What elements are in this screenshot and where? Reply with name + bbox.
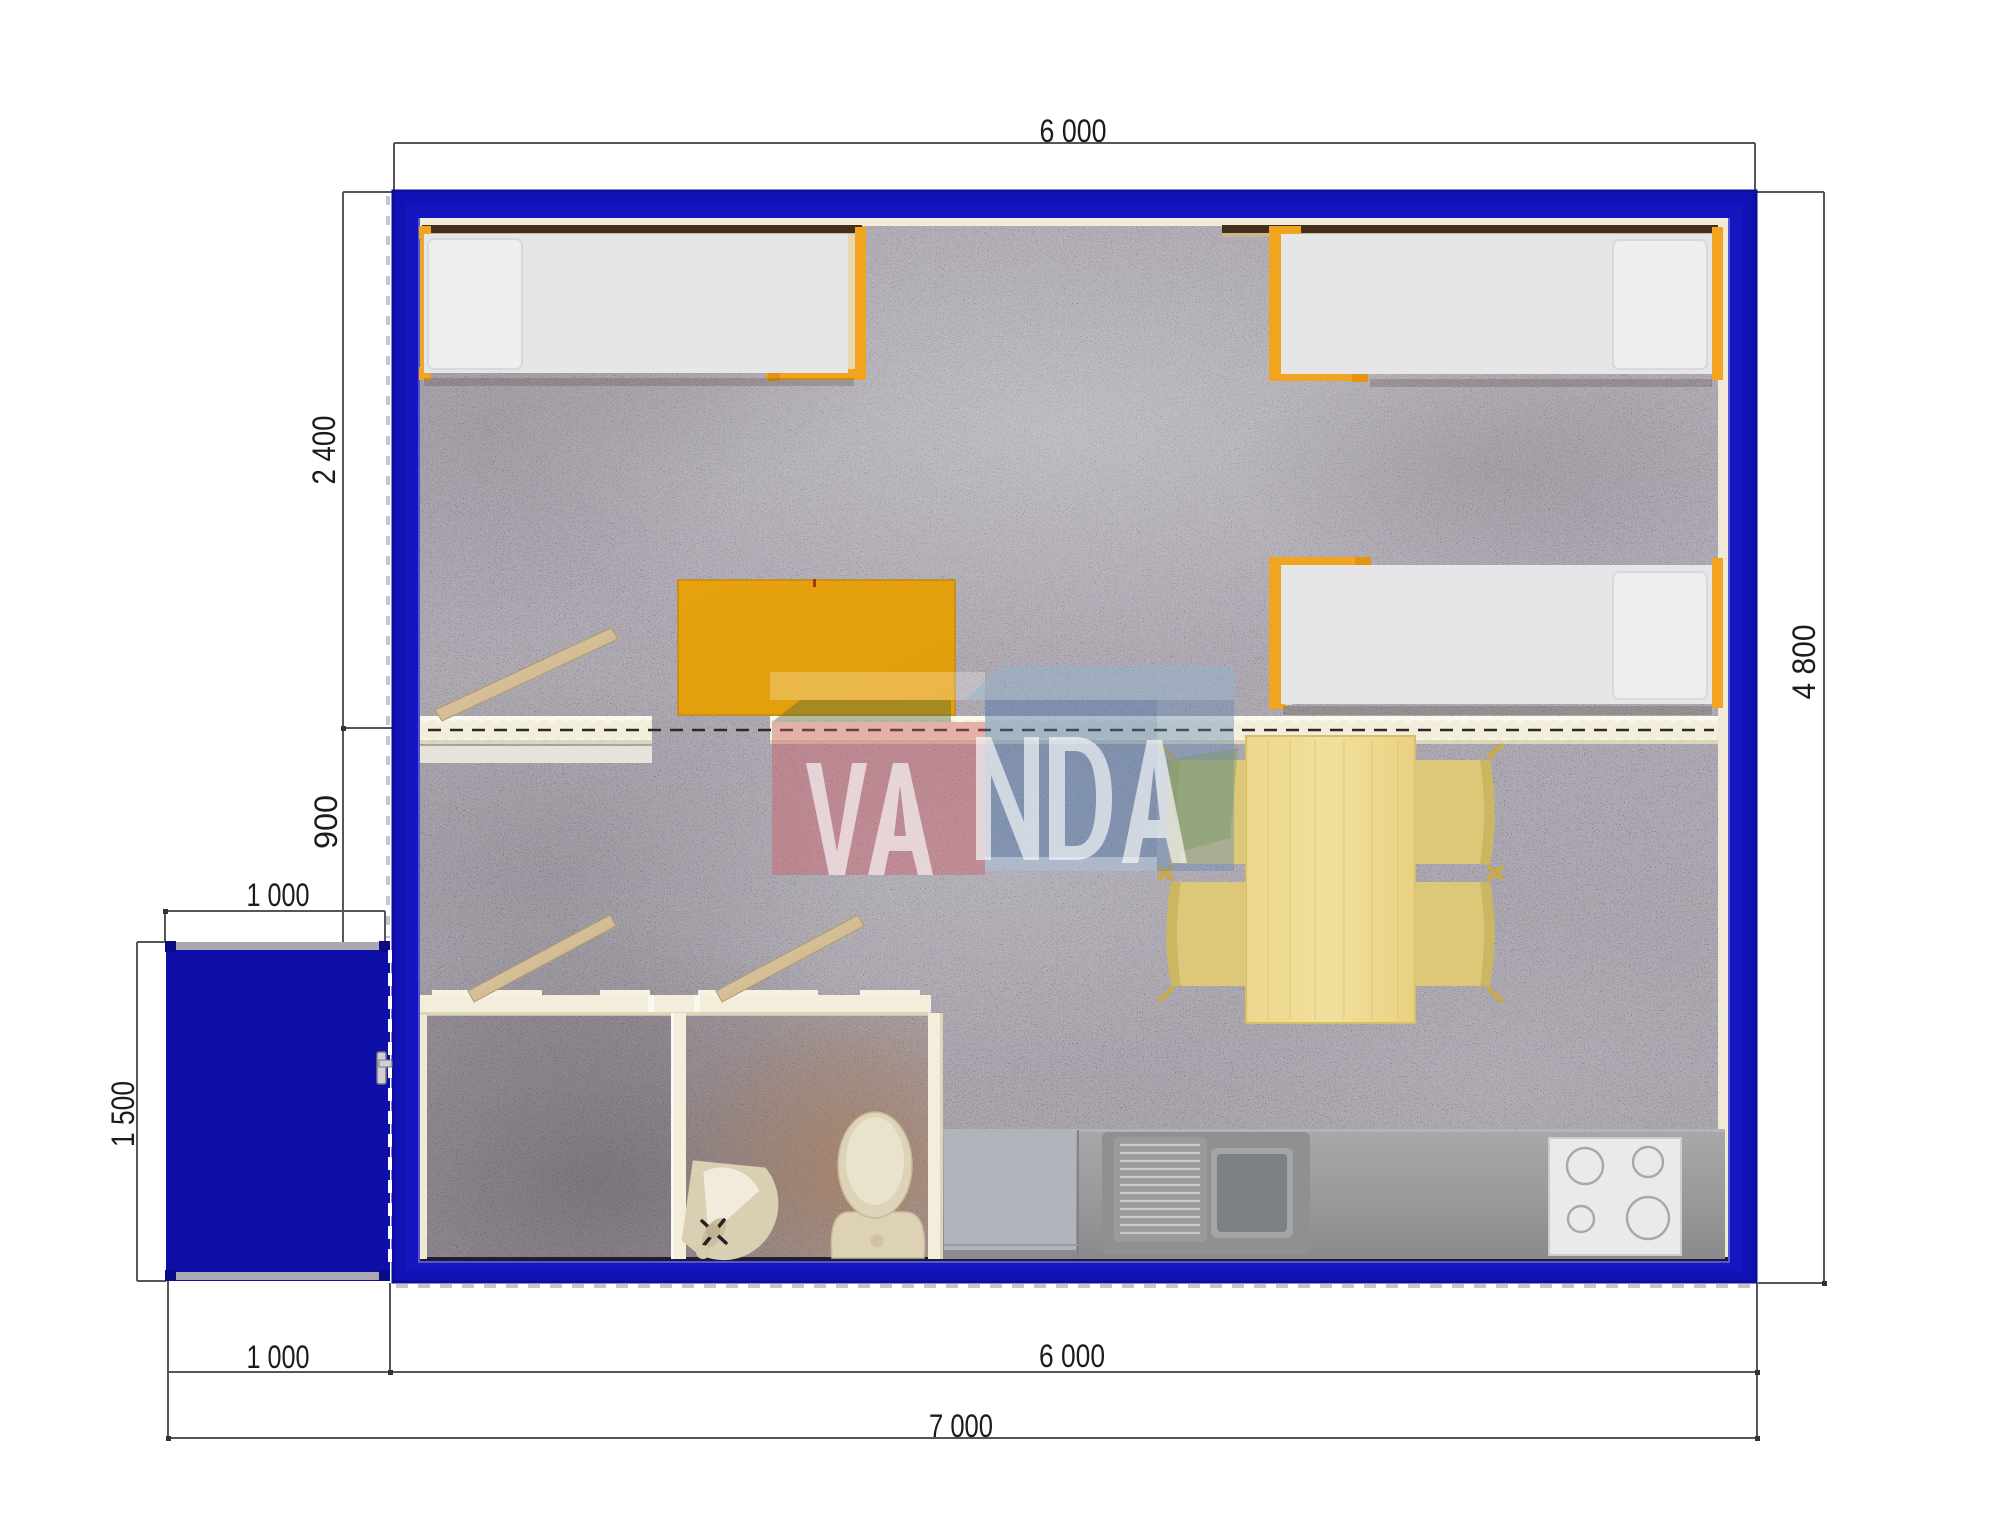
svg-text:1 000: 1 000 [247,877,310,913]
svg-text:7 000: 7 000 [929,1408,993,1444]
svg-text:1 000: 1 000 [247,1339,310,1375]
svg-text:2 400: 2 400 [306,416,342,485]
svg-text:6 000: 6 000 [1039,1338,1105,1374]
svg-text:6 000: 6 000 [1040,113,1107,149]
svg-text:900: 900 [308,795,344,849]
svg-text:1 500: 1 500 [105,1081,141,1147]
svg-text:4 800: 4 800 [1786,625,1822,700]
